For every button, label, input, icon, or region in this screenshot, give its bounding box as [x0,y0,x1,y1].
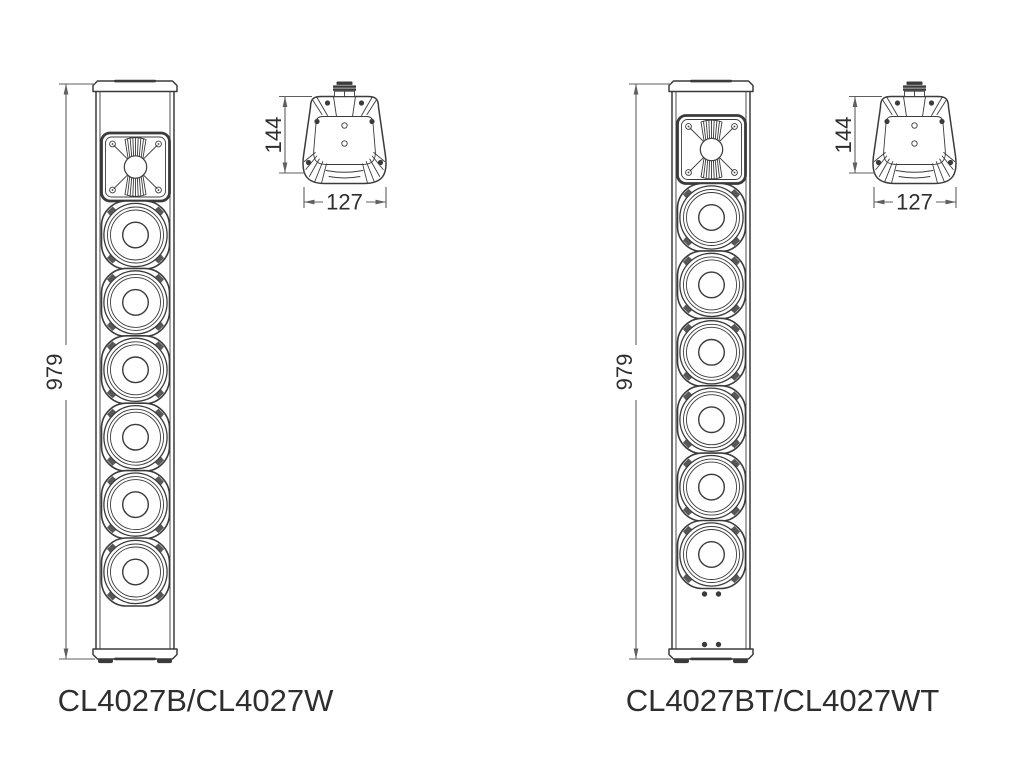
woofer-driver [678,521,746,589]
depth-dim-value-right: 144 [831,117,856,154]
woofer-driver [102,201,170,269]
screw-dot [702,591,707,596]
woofer-driver [102,538,170,606]
model-label-right: CL4027BT/CL4027WT [626,683,940,718]
screw-dot [716,591,721,596]
height-dim-value-left: 979 [42,354,67,391]
woofer-stack-left [102,201,170,606]
woofer-driver [102,336,170,404]
speaker-drawing-left: 979 144 127 CL4027B/CL4027W [42,80,386,718]
model-label-left: CL4027B/CL4027W [58,683,334,718]
screw-dot [702,642,707,647]
height-dim-value-right: 979 [612,354,637,391]
woofer-driver [678,251,746,319]
tweeter-left [102,133,170,201]
woofer-driver [102,268,170,336]
woofer-driver [678,184,746,252]
speaker-technical-drawing: 979 144 127 CL4027B/CL4027W [0,0,1010,768]
width-dim-value-left: 127 [326,190,363,215]
woofer-driver [102,471,170,539]
woofer-driver [678,386,746,454]
width-dim-value-right: 127 [896,190,933,215]
screw-dot [716,642,721,647]
depth-dim-value-left: 144 [261,117,286,154]
transformer-screw-dots [702,591,721,647]
dimension-height-left: 979 [42,84,95,659]
top-view-right: 144 127 [831,82,956,215]
dimension-height-right: 979 [612,84,671,659]
tweeter-right [678,116,746,184]
woofer-driver [102,403,170,471]
top-view-left: 144 127 [261,82,386,215]
drawing-sheet: 979 144 127 CL4027B/CL4027W [0,0,1010,768]
woofer-driver [678,453,746,521]
speaker-drawing-right: 979 144 127 CL4027BT/CL4027WT [612,80,956,718]
woofer-stack-right [678,184,746,589]
woofer-driver [678,318,746,386]
